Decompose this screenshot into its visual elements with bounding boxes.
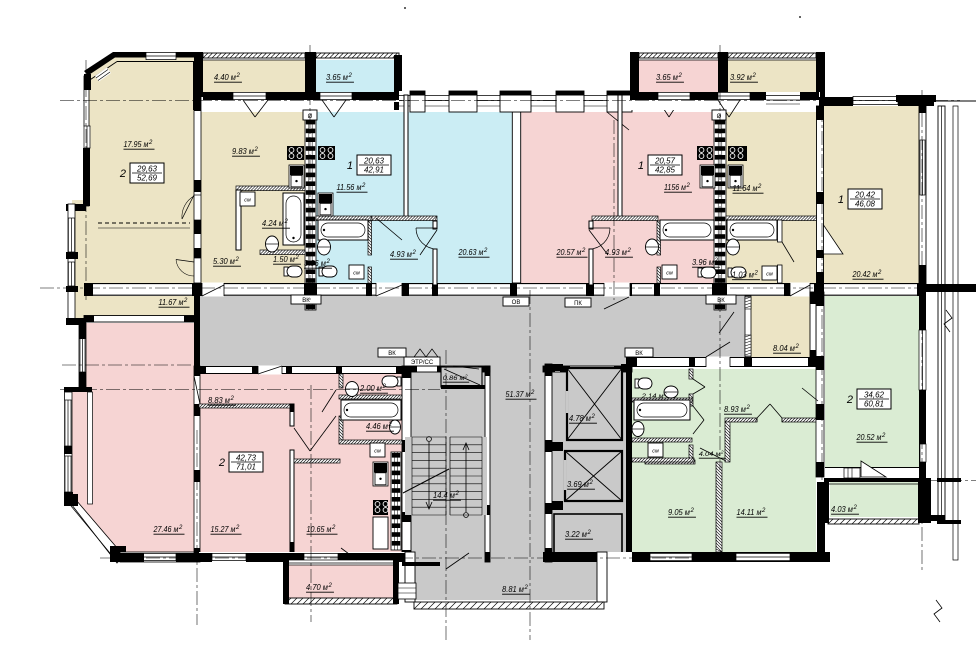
svg-text:2: 2 <box>229 396 234 402</box>
svg-text:2: 2 <box>751 73 756 79</box>
svg-text:2: 2 <box>590 414 595 420</box>
svg-text:27.46 м: 27.46 м <box>153 524 179 534</box>
svg-text:см: см <box>666 271 673 277</box>
svg-text:2: 2 <box>753 271 758 277</box>
svg-text:4.24 м: 4.24 м <box>262 218 284 228</box>
svg-text:20.57 м: 20.57 м <box>556 247 582 257</box>
svg-text:51.37 м: 51.37 м <box>506 389 531 399</box>
svg-text:ОВ: ОВ <box>512 300 521 306</box>
svg-text:3.96 м: 3.96 м <box>304 258 326 268</box>
svg-text:2: 2 <box>761 508 766 514</box>
svg-text:1156 м: 1156 м <box>664 182 686 192</box>
svg-text:2: 2 <box>218 457 225 469</box>
svg-text:см: см <box>353 271 360 277</box>
svg-text:2: 2 <box>713 258 718 264</box>
svg-text:2: 2 <box>178 525 183 531</box>
svg-text:2: 2 <box>663 392 667 397</box>
svg-text:2: 2 <box>626 248 631 254</box>
svg-text:2: 2 <box>148 140 153 146</box>
svg-text:17.95 м: 17.95 м <box>124 139 149 149</box>
svg-text:3.65 м: 3.65 м <box>656 72 678 82</box>
svg-text:2: 2 <box>530 390 535 396</box>
svg-text:2: 2 <box>586 530 591 536</box>
svg-text:1.50 м: 1.50 м <box>273 254 295 264</box>
svg-text:2: 2 <box>325 259 330 265</box>
svg-text:20,42: 20,42 <box>854 191 876 200</box>
svg-text:2: 2 <box>454 491 459 497</box>
svg-text:42,91: 42,91 <box>364 166 384 175</box>
svg-text:2: 2 <box>689 508 694 514</box>
svg-text:2: 2 <box>745 405 750 411</box>
svg-text:см: см <box>652 449 659 455</box>
svg-text:8.83 м: 8.83 м <box>208 395 230 405</box>
svg-text:4.03 м: 4.03 м <box>831 504 853 514</box>
svg-text:2: 2 <box>877 270 882 276</box>
svg-text:3.65 м: 3.65 м <box>326 72 348 82</box>
svg-text:2: 2 <box>464 374 468 379</box>
svg-text:8.04 м: 8.04 м <box>773 343 795 353</box>
svg-text:2: 2 <box>523 585 528 591</box>
svg-text:2: 2 <box>794 344 799 350</box>
svg-text:8.81 м: 8.81 м <box>502 584 524 594</box>
svg-text:2: 2 <box>331 525 336 531</box>
svg-text:ВК: ВК <box>635 351 643 357</box>
svg-text:71,01: 71,01 <box>236 463 256 472</box>
svg-text:20.52 м: 20.52 м <box>856 432 882 442</box>
svg-text:см: см <box>374 449 381 455</box>
svg-text:20.63 м: 20.63 м <box>458 247 484 257</box>
svg-text:11.56 м: 11.56 м <box>337 182 362 192</box>
svg-text:11.67 м: 11.67 м <box>159 297 184 307</box>
svg-text:0.86 м: 0.86 м <box>443 375 466 382</box>
svg-text:4.78 м: 4.78 м <box>569 413 591 423</box>
svg-text:2: 2 <box>347 73 352 79</box>
svg-text:34,62: 34,62 <box>864 391 885 400</box>
svg-text:4.93 м: 4.93 м <box>605 247 627 257</box>
svg-text:42,73: 42,73 <box>236 454 257 463</box>
svg-text:1: 1 <box>838 194 844 206</box>
svg-text:2: 2 <box>588 480 593 486</box>
svg-text:1: 1 <box>347 160 353 172</box>
svg-text:15.27 м: 15.27 м <box>211 524 236 534</box>
svg-text:3.69 м: 3.69 м <box>567 479 589 489</box>
svg-text:2: 2 <box>846 394 853 406</box>
svg-text:2: 2 <box>253 147 258 153</box>
svg-text:ВК: ВК <box>302 298 310 304</box>
svg-text:ВК: ВК <box>388 351 396 357</box>
svg-text:9.05 м: 9.05 м <box>668 507 690 517</box>
svg-text:14.11 м: 14.11 м <box>737 507 762 517</box>
svg-text:20,57: 20,57 <box>654 157 676 166</box>
svg-text:2: 2 <box>757 184 762 190</box>
svg-text:4.40 м: 4.40 м <box>214 72 236 82</box>
svg-text:20.42 м: 20.42 м <box>852 269 878 279</box>
svg-text:2: 2 <box>387 422 392 428</box>
svg-text:ЭТР/СС: ЭТР/СС <box>411 360 434 366</box>
svg-text:2: 2 <box>852 505 857 511</box>
svg-text:14.4 м: 14.4 м <box>433 490 455 500</box>
svg-text:2: 2 <box>235 525 240 531</box>
svg-text:2: 2 <box>119 168 126 180</box>
svg-text:2.00 м: 2.00 м <box>359 383 382 393</box>
svg-text:2: 2 <box>234 257 239 263</box>
svg-text:2: 2 <box>411 250 416 256</box>
svg-text:см: см <box>766 272 773 278</box>
svg-text:52,69: 52,69 <box>137 174 158 183</box>
svg-text:42,85: 42,85 <box>655 166 676 175</box>
svg-text:10.65 м: 10.65 м <box>307 524 332 534</box>
svg-text:2: 2 <box>685 183 690 189</box>
svg-text:4.46 м: 4.46 м <box>366 421 388 431</box>
svg-text:Ø: Ø <box>717 114 722 120</box>
svg-text:2: 2 <box>235 73 240 79</box>
svg-text:2: 2 <box>381 384 386 390</box>
svg-text:см: см <box>244 198 251 204</box>
svg-text:29,63: 29,63 <box>136 165 158 174</box>
svg-text:60,81: 60,81 <box>864 400 884 409</box>
svg-text:1: 1 <box>638 160 644 172</box>
svg-text:2: 2 <box>283 219 288 225</box>
svg-text:2: 2 <box>677 73 682 79</box>
svg-text:ВК: ВК <box>717 298 725 304</box>
svg-text:2: 2 <box>327 583 332 589</box>
svg-text:ПК: ПК <box>574 301 582 307</box>
svg-text:4.70 м: 4.70 м <box>306 582 328 592</box>
svg-text:2.14 м: 2.14 м <box>641 393 665 400</box>
svg-text:2: 2 <box>483 248 488 254</box>
svg-text:2: 2 <box>361 183 366 189</box>
svg-text:2: 2 <box>183 298 188 304</box>
svg-text:20,63: 20,63 <box>363 157 385 166</box>
svg-text:11.64 м: 11.64 м <box>733 183 758 193</box>
svg-text:1.03 м: 1.03 м <box>732 270 754 280</box>
svg-text:8.93 м: 8.93 м <box>724 404 746 414</box>
svg-text:4.04 м: 4.04 м <box>699 451 722 458</box>
svg-text:46,08: 46,08 <box>855 200 876 209</box>
svg-text:3.22 м: 3.22 м <box>565 529 587 539</box>
svg-text:2: 2 <box>720 450 724 455</box>
svg-text:3.92 м: 3.92 м <box>730 72 752 82</box>
svg-text:2: 2 <box>581 248 586 254</box>
svg-text:2: 2 <box>294 255 299 261</box>
svg-text:3.96 м: 3.96 м <box>692 257 714 267</box>
svg-text:9.83 м: 9.83 м <box>232 146 254 156</box>
svg-text:4.93 м: 4.93 м <box>390 249 412 259</box>
svg-text:5.30 м: 5.30 м <box>213 256 235 266</box>
svg-text:2: 2 <box>881 433 886 439</box>
